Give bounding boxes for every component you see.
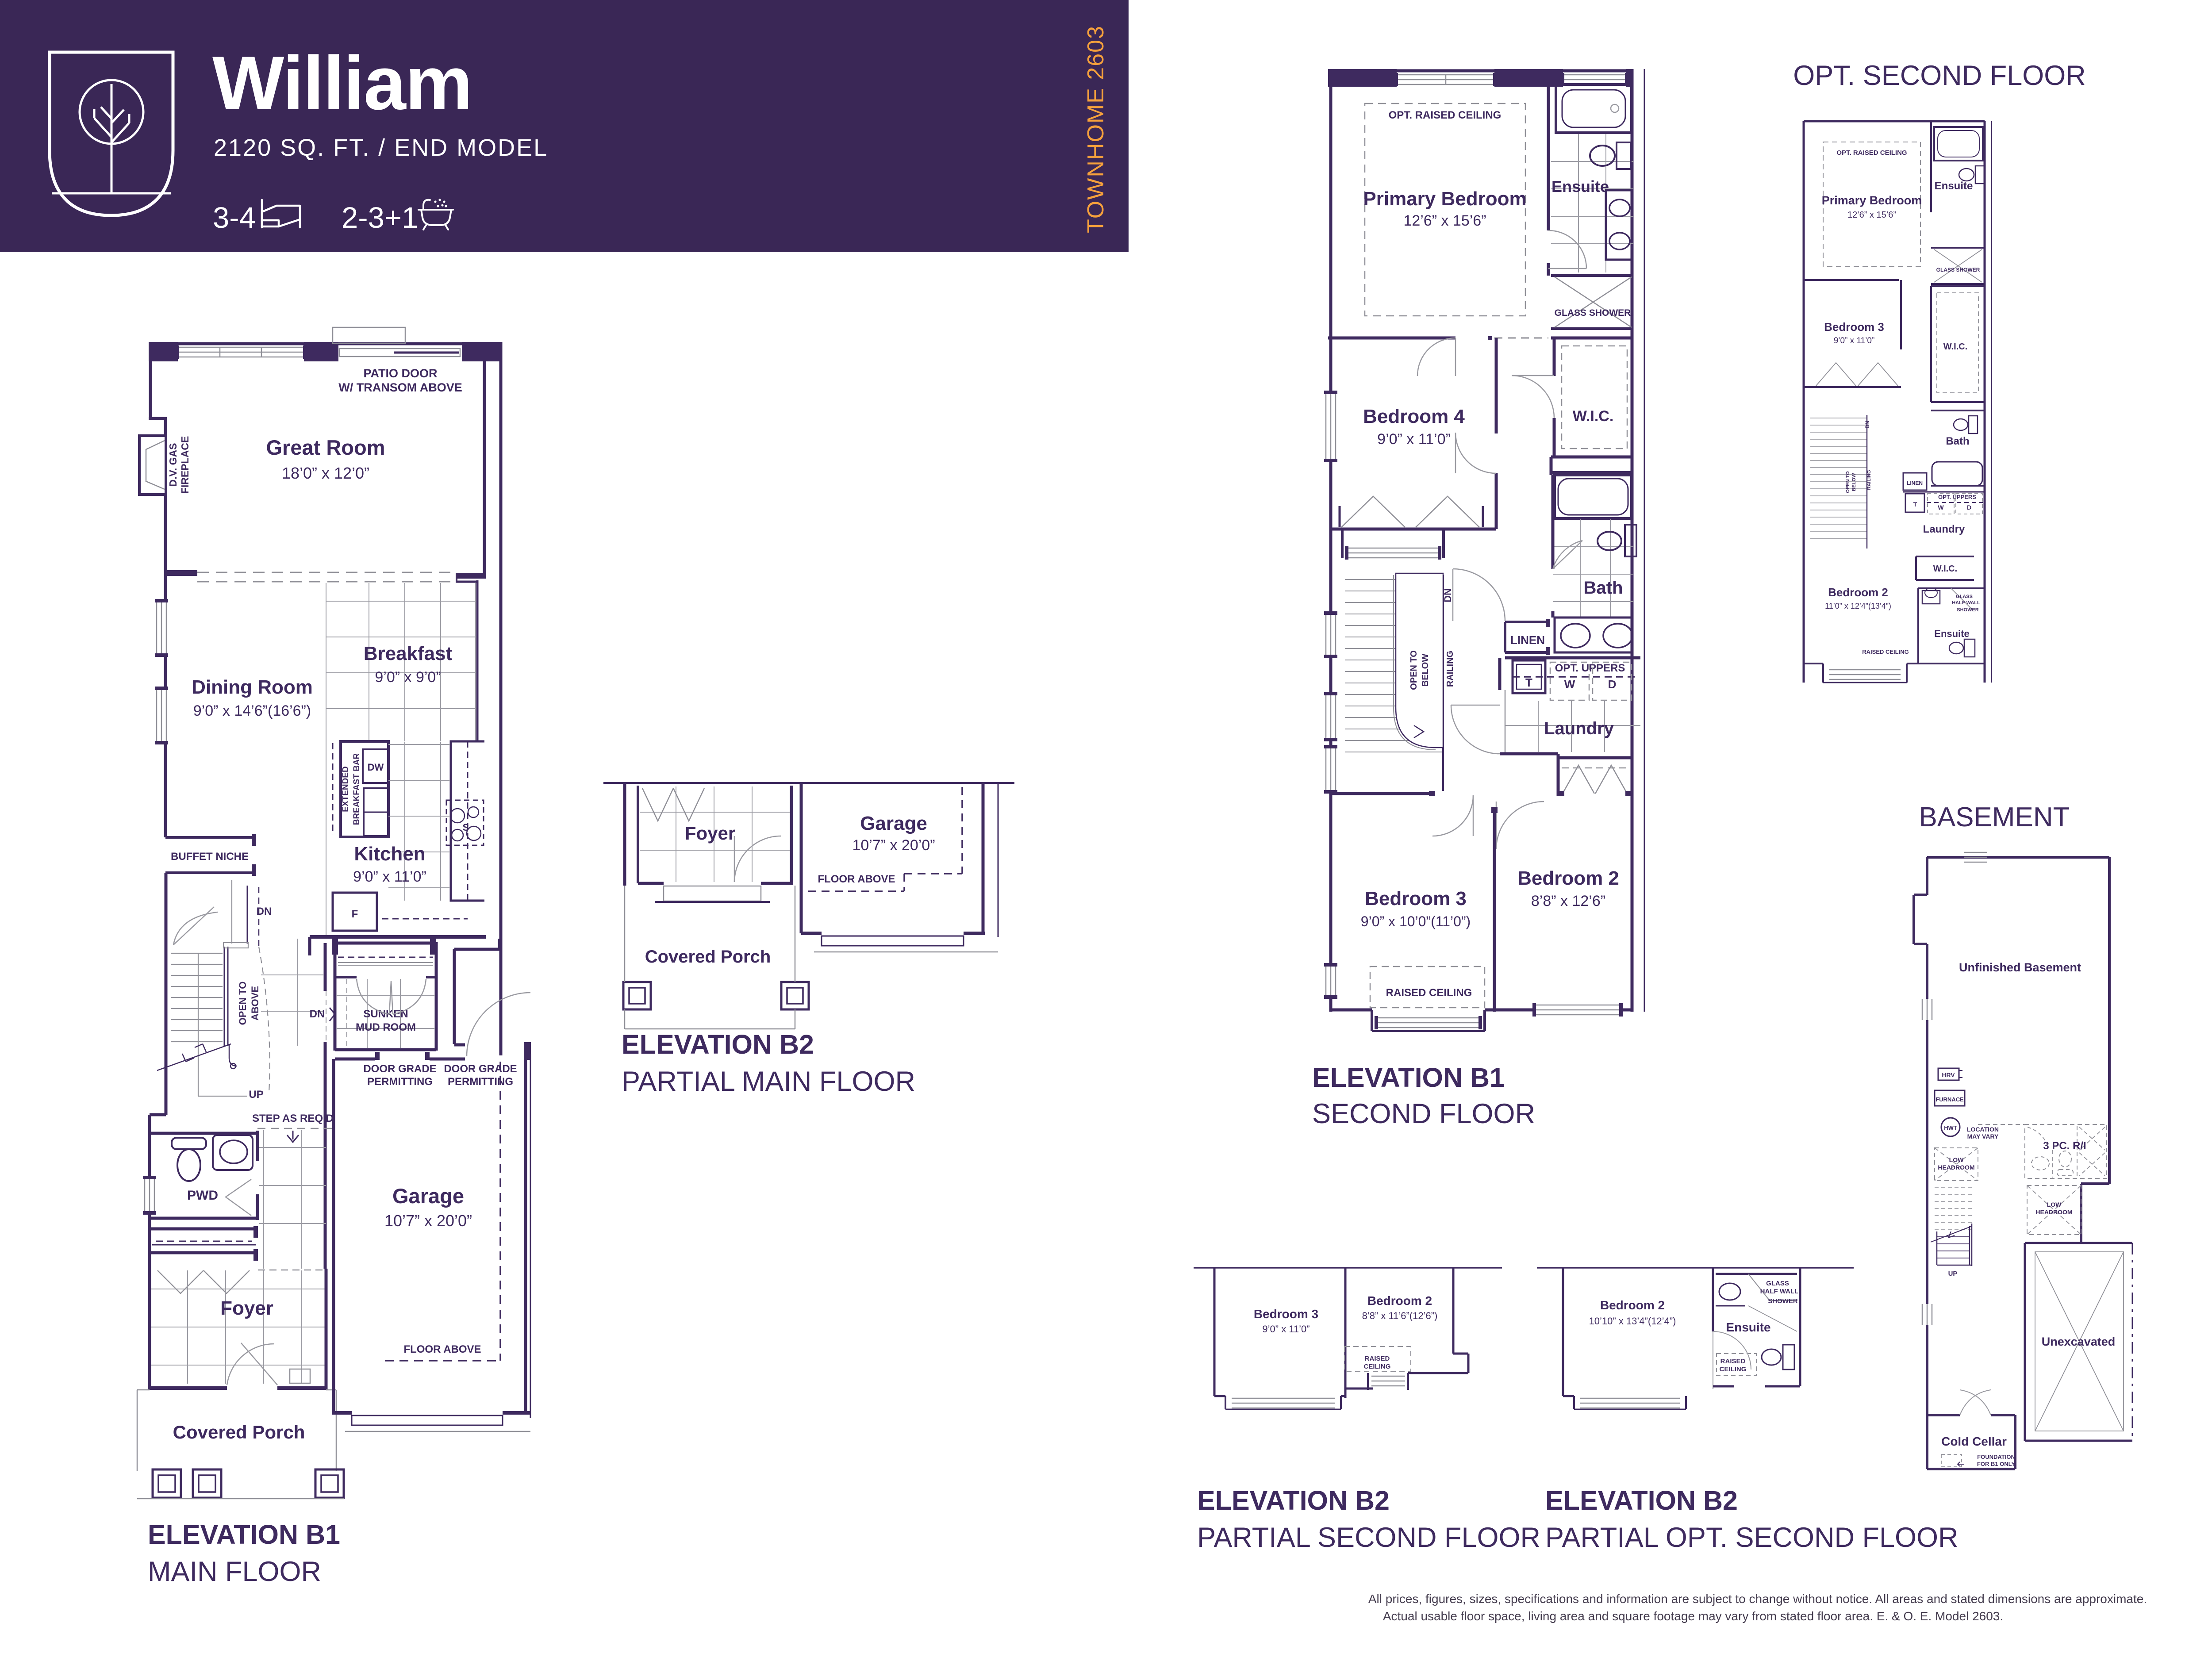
svg-text:UP: UP bbox=[1948, 1270, 1958, 1277]
svg-text:Kitchen: Kitchen bbox=[354, 843, 425, 865]
svg-text:Foyer: Foyer bbox=[685, 823, 735, 844]
svg-text:Primary Bedroom: Primary Bedroom bbox=[1363, 188, 1526, 210]
svg-text:Garage: Garage bbox=[392, 1184, 464, 1208]
svg-text:Great Room: Great Room bbox=[266, 436, 385, 459]
svg-text:Dining Room: Dining Room bbox=[192, 676, 313, 698]
svg-text:Ensuite: Ensuite bbox=[1551, 177, 1609, 196]
svg-text:PARTIAL MAIN FLOOR: PARTIAL MAIN FLOOR bbox=[622, 1066, 915, 1097]
svg-text:10’10” x 13’4”(12’4”): 10’10” x 13’4”(12’4”) bbox=[1589, 1316, 1676, 1327]
svg-text:FIREPLACE: FIREPLACE bbox=[179, 436, 191, 494]
svg-text:Bedroom 4: Bedroom 4 bbox=[1363, 406, 1465, 427]
svg-text:FOR B1 ONLY: FOR B1 ONLY bbox=[1977, 1461, 2016, 1467]
svg-text:PARTIAL OPT. SECOND FLOOR: PARTIAL OPT. SECOND FLOOR bbox=[1545, 1522, 1959, 1553]
svg-text:W.I.C.: W.I.C. bbox=[1943, 342, 1967, 352]
svg-text:RAILING: RAILING bbox=[1866, 470, 1872, 490]
svg-text:RAILING: RAILING bbox=[1445, 651, 1455, 687]
svg-text:MUD ROOM: MUD ROOM bbox=[356, 1021, 416, 1033]
svg-text:LINEN: LINEN bbox=[1907, 480, 1923, 486]
svg-text:Unexcavated: Unexcavated bbox=[2042, 1335, 2116, 1348]
svg-text:CEILING: CEILING bbox=[1364, 1363, 1391, 1370]
svg-text:DW: DW bbox=[368, 762, 384, 773]
svg-text:SHOWER: SHOWER bbox=[1957, 607, 1979, 613]
svg-text:9’0” x 11’0”: 9’0” x 11’0” bbox=[353, 868, 426, 885]
svg-text:SECOND FLOOR: SECOND FLOOR bbox=[1312, 1098, 1535, 1129]
svg-text:11’0” x 12’4”(13’4”): 11’0” x 12’4”(13’4”) bbox=[1825, 602, 1891, 610]
svg-text:GLASS SHOWER: GLASS SHOWER bbox=[1936, 267, 1980, 273]
svg-text:OPT. UPPERS: OPT. UPPERS bbox=[1938, 494, 1976, 500]
svg-text:RAISED CEILING: RAISED CEILING bbox=[1862, 648, 1909, 655]
svg-text:S: S bbox=[463, 822, 469, 833]
svg-text:OPT. RAISED CEILING: OPT. RAISED CEILING bbox=[1389, 109, 1502, 121]
svg-text:STEP AS REQ.D: STEP AS REQ.D bbox=[252, 1112, 334, 1124]
svg-text:ELEVATION B2: ELEVATION B2 bbox=[622, 1029, 814, 1059]
svg-text:CEILING: CEILING bbox=[1720, 1366, 1747, 1373]
svg-text:9’0” x 9’0”: 9’0” x 9’0” bbox=[375, 669, 441, 686]
svg-text:Primary Bedroom: Primary Bedroom bbox=[1822, 194, 1922, 207]
svg-text:D.V. GAS: D.V. GAS bbox=[167, 443, 179, 487]
svg-text:Laundry: Laundry bbox=[1923, 523, 1965, 535]
svg-text:Actual usable floor space, liv: Actual usable floor space, living area a… bbox=[1383, 1609, 2003, 1623]
svg-text:BELOW: BELOW bbox=[1421, 654, 1430, 687]
svg-text:PARTIAL SECOND FLOOR: PARTIAL SECOND FLOOR bbox=[1197, 1522, 1540, 1553]
svg-text:UP: UP bbox=[249, 1089, 263, 1101]
svg-text:GLASS: GLASS bbox=[1956, 594, 1973, 599]
svg-text:ABOVE: ABOVE bbox=[250, 986, 261, 1020]
svg-text:OPT. SECOND FLOOR: OPT. SECOND FLOOR bbox=[1793, 60, 2086, 91]
svg-text:MAY VARY: MAY VARY bbox=[1967, 1133, 1999, 1140]
svg-text:GLASS: GLASS bbox=[1766, 1280, 1789, 1287]
svg-text:9’0” x 10’0”(11’0”): 9’0” x 10’0”(11’0”) bbox=[1361, 913, 1471, 929]
svg-text:Covered Porch: Covered Porch bbox=[645, 947, 771, 967]
svg-text:18’0” x 12’0”: 18’0” x 12’0” bbox=[282, 464, 369, 482]
svg-text:FLOOR ABOVE: FLOOR ABOVE bbox=[818, 873, 895, 885]
svg-text:W: W bbox=[1564, 678, 1575, 691]
svg-text:All prices, figures, sizes, sp: All prices, figures, sizes, specificatio… bbox=[1368, 1592, 2147, 1606]
svg-text:GLASS SHOWER: GLASS SHOWER bbox=[1555, 308, 1631, 318]
svg-text:LOW: LOW bbox=[1949, 1156, 1964, 1163]
svg-text:OPEN TO: OPEN TO bbox=[237, 982, 248, 1025]
svg-text:Bath: Bath bbox=[1584, 578, 1623, 598]
svg-text:TOWNHOME 2603: TOWNHOME 2603 bbox=[1083, 25, 1109, 233]
svg-text:Bedroom 2: Bedroom 2 bbox=[1828, 586, 1888, 599]
svg-text:HRV: HRV bbox=[1942, 1071, 1955, 1078]
svg-text:ELEVATION B2: ELEVATION B2 bbox=[1545, 1485, 1738, 1515]
svg-text:OPEN TO: OPEN TO bbox=[1409, 650, 1419, 690]
svg-text:SHOWER: SHOWER bbox=[1768, 1297, 1798, 1305]
svg-text:Unfinished Basement: Unfinished Basement bbox=[1959, 961, 2081, 974]
svg-text:RAISED CEILING: RAISED CEILING bbox=[1386, 987, 1472, 999]
svg-text:Cold Cellar: Cold Cellar bbox=[1941, 1435, 2007, 1448]
svg-text:Ensuite: Ensuite bbox=[1726, 1320, 1770, 1334]
svg-text:BASEMENT: BASEMENT bbox=[1919, 802, 2070, 832]
svg-text:PERMITTING: PERMITTING bbox=[367, 1076, 433, 1088]
svg-text:9’0” x 11’0”: 9’0” x 11’0” bbox=[1834, 336, 1875, 345]
svg-text:3-4: 3-4 bbox=[213, 201, 256, 234]
svg-text:BUFFET NICHE: BUFFET NICHE bbox=[171, 851, 249, 863]
svg-text:T: T bbox=[1525, 676, 1532, 689]
svg-text:FURNACE: FURNACE bbox=[1935, 1096, 1964, 1103]
svg-text:12’6” x 15’6”: 12’6” x 15’6” bbox=[1403, 212, 1486, 229]
svg-text:3 PC. R/I: 3 PC. R/I bbox=[2043, 1140, 2086, 1152]
svg-text:Laundry: Laundry bbox=[1544, 719, 1614, 738]
svg-text:William: William bbox=[212, 41, 472, 126]
svg-text:Breakfast: Breakfast bbox=[364, 643, 453, 664]
svg-text:HALF WALL: HALF WALL bbox=[1760, 1288, 1799, 1295]
svg-text:12’6” x 15’6”: 12’6” x 15’6” bbox=[1847, 210, 1896, 220]
svg-text:PWD: PWD bbox=[187, 1188, 218, 1203]
svg-text:D: D bbox=[1967, 504, 1971, 511]
svg-text:Bedroom 2: Bedroom 2 bbox=[1517, 867, 1619, 889]
svg-text:Garage: Garage bbox=[860, 813, 927, 834]
svg-text:Bath: Bath bbox=[1946, 435, 1969, 447]
svg-text:9’0” x 11’0”: 9’0” x 11’0” bbox=[1262, 1323, 1310, 1335]
svg-text:HEADROOM: HEADROOM bbox=[1938, 1164, 1974, 1171]
svg-text:DN: DN bbox=[1442, 588, 1453, 602]
svg-text:DN: DN bbox=[310, 1008, 325, 1020]
svg-text:BELOW: BELOW bbox=[1851, 473, 1857, 491]
svg-text:Ensuite: Ensuite bbox=[1935, 180, 1973, 192]
svg-text:FOUNDATION: FOUNDATION bbox=[1977, 1454, 2015, 1460]
svg-text:T: T bbox=[1913, 501, 1917, 508]
svg-text:HEADROOM: HEADROOM bbox=[2035, 1208, 2072, 1216]
svg-text:2120 SQ. FT. / END MODEL: 2120 SQ. FT. / END MODEL bbox=[214, 134, 548, 161]
svg-text:LOCATION: LOCATION bbox=[1967, 1126, 1999, 1133]
svg-text:HWT: HWT bbox=[1944, 1124, 1957, 1131]
svg-text:PATIO DOOR: PATIO DOOR bbox=[364, 367, 438, 380]
svg-text:RAISED: RAISED bbox=[1365, 1355, 1390, 1362]
svg-text:EXTENDED: EXTENDED bbox=[341, 766, 350, 812]
svg-text:Foyer: Foyer bbox=[220, 1297, 273, 1319]
svg-text:ELEVATION B2: ELEVATION B2 bbox=[1197, 1485, 1390, 1515]
svg-text:W/ TRANSOM ABOVE: W/ TRANSOM ABOVE bbox=[338, 381, 462, 394]
svg-text:ELEVATION B1: ELEVATION B1 bbox=[1312, 1063, 1505, 1093]
svg-text:D: D bbox=[1608, 678, 1617, 691]
svg-text:DN: DN bbox=[1864, 421, 1870, 428]
svg-text:LINEN: LINEN bbox=[1510, 633, 1545, 647]
svg-text:8’8” x 11’6”(12’6”): 8’8” x 11’6”(12’6”) bbox=[1362, 1310, 1438, 1321]
svg-text:PERMITTING: PERMITTING bbox=[448, 1076, 513, 1088]
svg-text:OPT. RAISED CEILING: OPT. RAISED CEILING bbox=[1836, 149, 1907, 157]
svg-text:DOOR GRADE: DOOR GRADE bbox=[444, 1063, 517, 1075]
svg-text:BREAKFAST BAR: BREAKFAST BAR bbox=[352, 753, 361, 825]
svg-text:F: F bbox=[352, 908, 358, 920]
svg-text:Bedroom 2: Bedroom 2 bbox=[1367, 1294, 1432, 1308]
svg-text:SUNKEN: SUNKEN bbox=[363, 1008, 408, 1020]
svg-text:OPT. UPPERS: OPT. UPPERS bbox=[1555, 662, 1625, 674]
svg-text:Bedroom 3: Bedroom 3 bbox=[1824, 320, 1884, 334]
svg-text:W.I.C.: W.I.C. bbox=[1933, 564, 1957, 574]
svg-text:LOW: LOW bbox=[2047, 1201, 2062, 1208]
svg-text:10’7” x 20’0”: 10’7” x 20’0” bbox=[384, 1212, 472, 1230]
svg-text:Bedroom 3: Bedroom 3 bbox=[1254, 1307, 1318, 1321]
svg-text:OPEN TO: OPEN TO bbox=[1845, 471, 1851, 493]
svg-text:ELEVATION B1: ELEVATION B1 bbox=[148, 1519, 340, 1550]
svg-text:8’8” x 12’6”: 8’8” x 12’6” bbox=[1531, 893, 1605, 909]
svg-text:HALF WALL: HALF WALL bbox=[1952, 600, 1980, 606]
svg-text:FLOOR ABOVE: FLOOR ABOVE bbox=[403, 1343, 481, 1355]
svg-text:9’0” x 11’0”: 9’0” x 11’0” bbox=[1377, 431, 1451, 448]
svg-text:Ensuite: Ensuite bbox=[1934, 628, 1969, 639]
svg-text:DOOR GRADE: DOOR GRADE bbox=[363, 1063, 436, 1075]
svg-text:9’0” x 14’6”(16’6”): 9’0” x 14’6”(16’6”) bbox=[193, 702, 311, 719]
svg-text:Bedroom 2: Bedroom 2 bbox=[1600, 1298, 1665, 1312]
svg-text:RAISED: RAISED bbox=[1720, 1358, 1746, 1365]
svg-text:Covered Porch: Covered Porch bbox=[173, 1422, 305, 1442]
svg-text:2-3+1: 2-3+1 bbox=[342, 201, 418, 234]
svg-text:10’7” x 20’0”: 10’7” x 20’0” bbox=[852, 837, 935, 854]
svg-text:Bedroom 3: Bedroom 3 bbox=[1365, 888, 1467, 909]
svg-text:W.I.C.: W.I.C. bbox=[1573, 408, 1614, 425]
svg-text:W: W bbox=[1938, 504, 1944, 511]
svg-text:MAIN FLOOR: MAIN FLOOR bbox=[148, 1556, 321, 1587]
